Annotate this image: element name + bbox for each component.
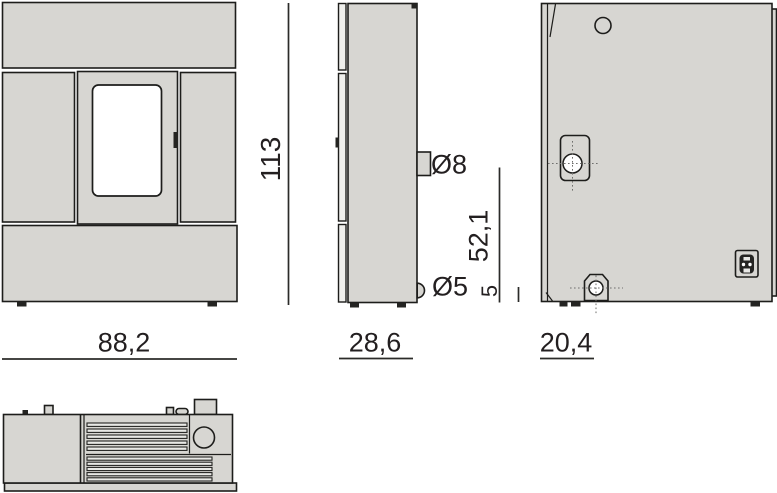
dim-label-side-depth: 28,6 [349, 330, 402, 357]
front-door-handle [174, 132, 179, 148]
top-grille-slat [87, 423, 187, 426]
top-small-tab [167, 408, 174, 415]
top-grille-slat [87, 462, 212, 465]
side-air-intake-bump [417, 283, 424, 298]
side-front-strip-top [339, 4, 347, 71]
top-grille-slat [87, 467, 212, 470]
side-flue-pipe [417, 152, 431, 176]
dim-label-front-width: 88,2 [98, 330, 151, 357]
top-view [4, 400, 237, 492]
front-base-panel [3, 226, 238, 302]
front-view [3, 3, 238, 307]
front-top-panel [3, 3, 236, 69]
side-top-rear-notch [412, 4, 418, 9]
dim-label-intake-height: 5 [479, 285, 501, 297]
top-grille-slat [87, 473, 212, 476]
rear-foot-1 [560, 302, 568, 307]
top-grille-slat [87, 447, 187, 450]
top-left-tab [45, 406, 54, 415]
side-foot-rear [397, 303, 406, 308]
side-view [336, 4, 431, 308]
top-grille-slat [87, 478, 212, 481]
dim-label-intake-diameter: Ø5 [432, 274, 468, 301]
top-hopper-block [195, 400, 217, 415]
power-socket-pin-right [748, 263, 751, 266]
dim-label-flue-height: 52,1 [466, 210, 493, 263]
dim-label-flue-diameter: Ø8 [431, 152, 467, 179]
top-grille-slat [87, 457, 212, 460]
stove-dimension-drawing: 113 Ø8 52,1 Ø5 5 88,2 28,6 20,4 [0, 0, 777, 493]
front-foot-left [17, 302, 27, 307]
side-door-handle [336, 138, 340, 148]
top-round-tab [176, 409, 188, 415]
front-right-panel [181, 73, 236, 223]
top-base-plate [5, 483, 237, 491]
top-grille-slat [87, 441, 187, 444]
power-socket-slot-top [744, 257, 751, 261]
drawing-canvas [0, 0, 777, 493]
dim-label-flue-offset: 20,4 [540, 330, 593, 357]
dim-label-height: 113 [257, 137, 285, 182]
rear-foot-3 [751, 302, 761, 307]
side-front-strip-middle [339, 74, 347, 222]
top-grille-slat [87, 435, 187, 438]
side-front-strip-bottom [339, 225, 347, 303]
power-socket-pin-left [742, 263, 745, 266]
top-grille-slat [87, 429, 187, 432]
side-body [348, 4, 417, 303]
front-foot-right [208, 302, 218, 307]
rear-foot-2 [571, 302, 581, 307]
rear-view [542, 4, 777, 315]
side-foot-front [350, 303, 359, 308]
power-socket-slot-bottom [744, 269, 751, 273]
front-left-panel [3, 73, 75, 223]
front-door-glass [93, 85, 162, 196]
